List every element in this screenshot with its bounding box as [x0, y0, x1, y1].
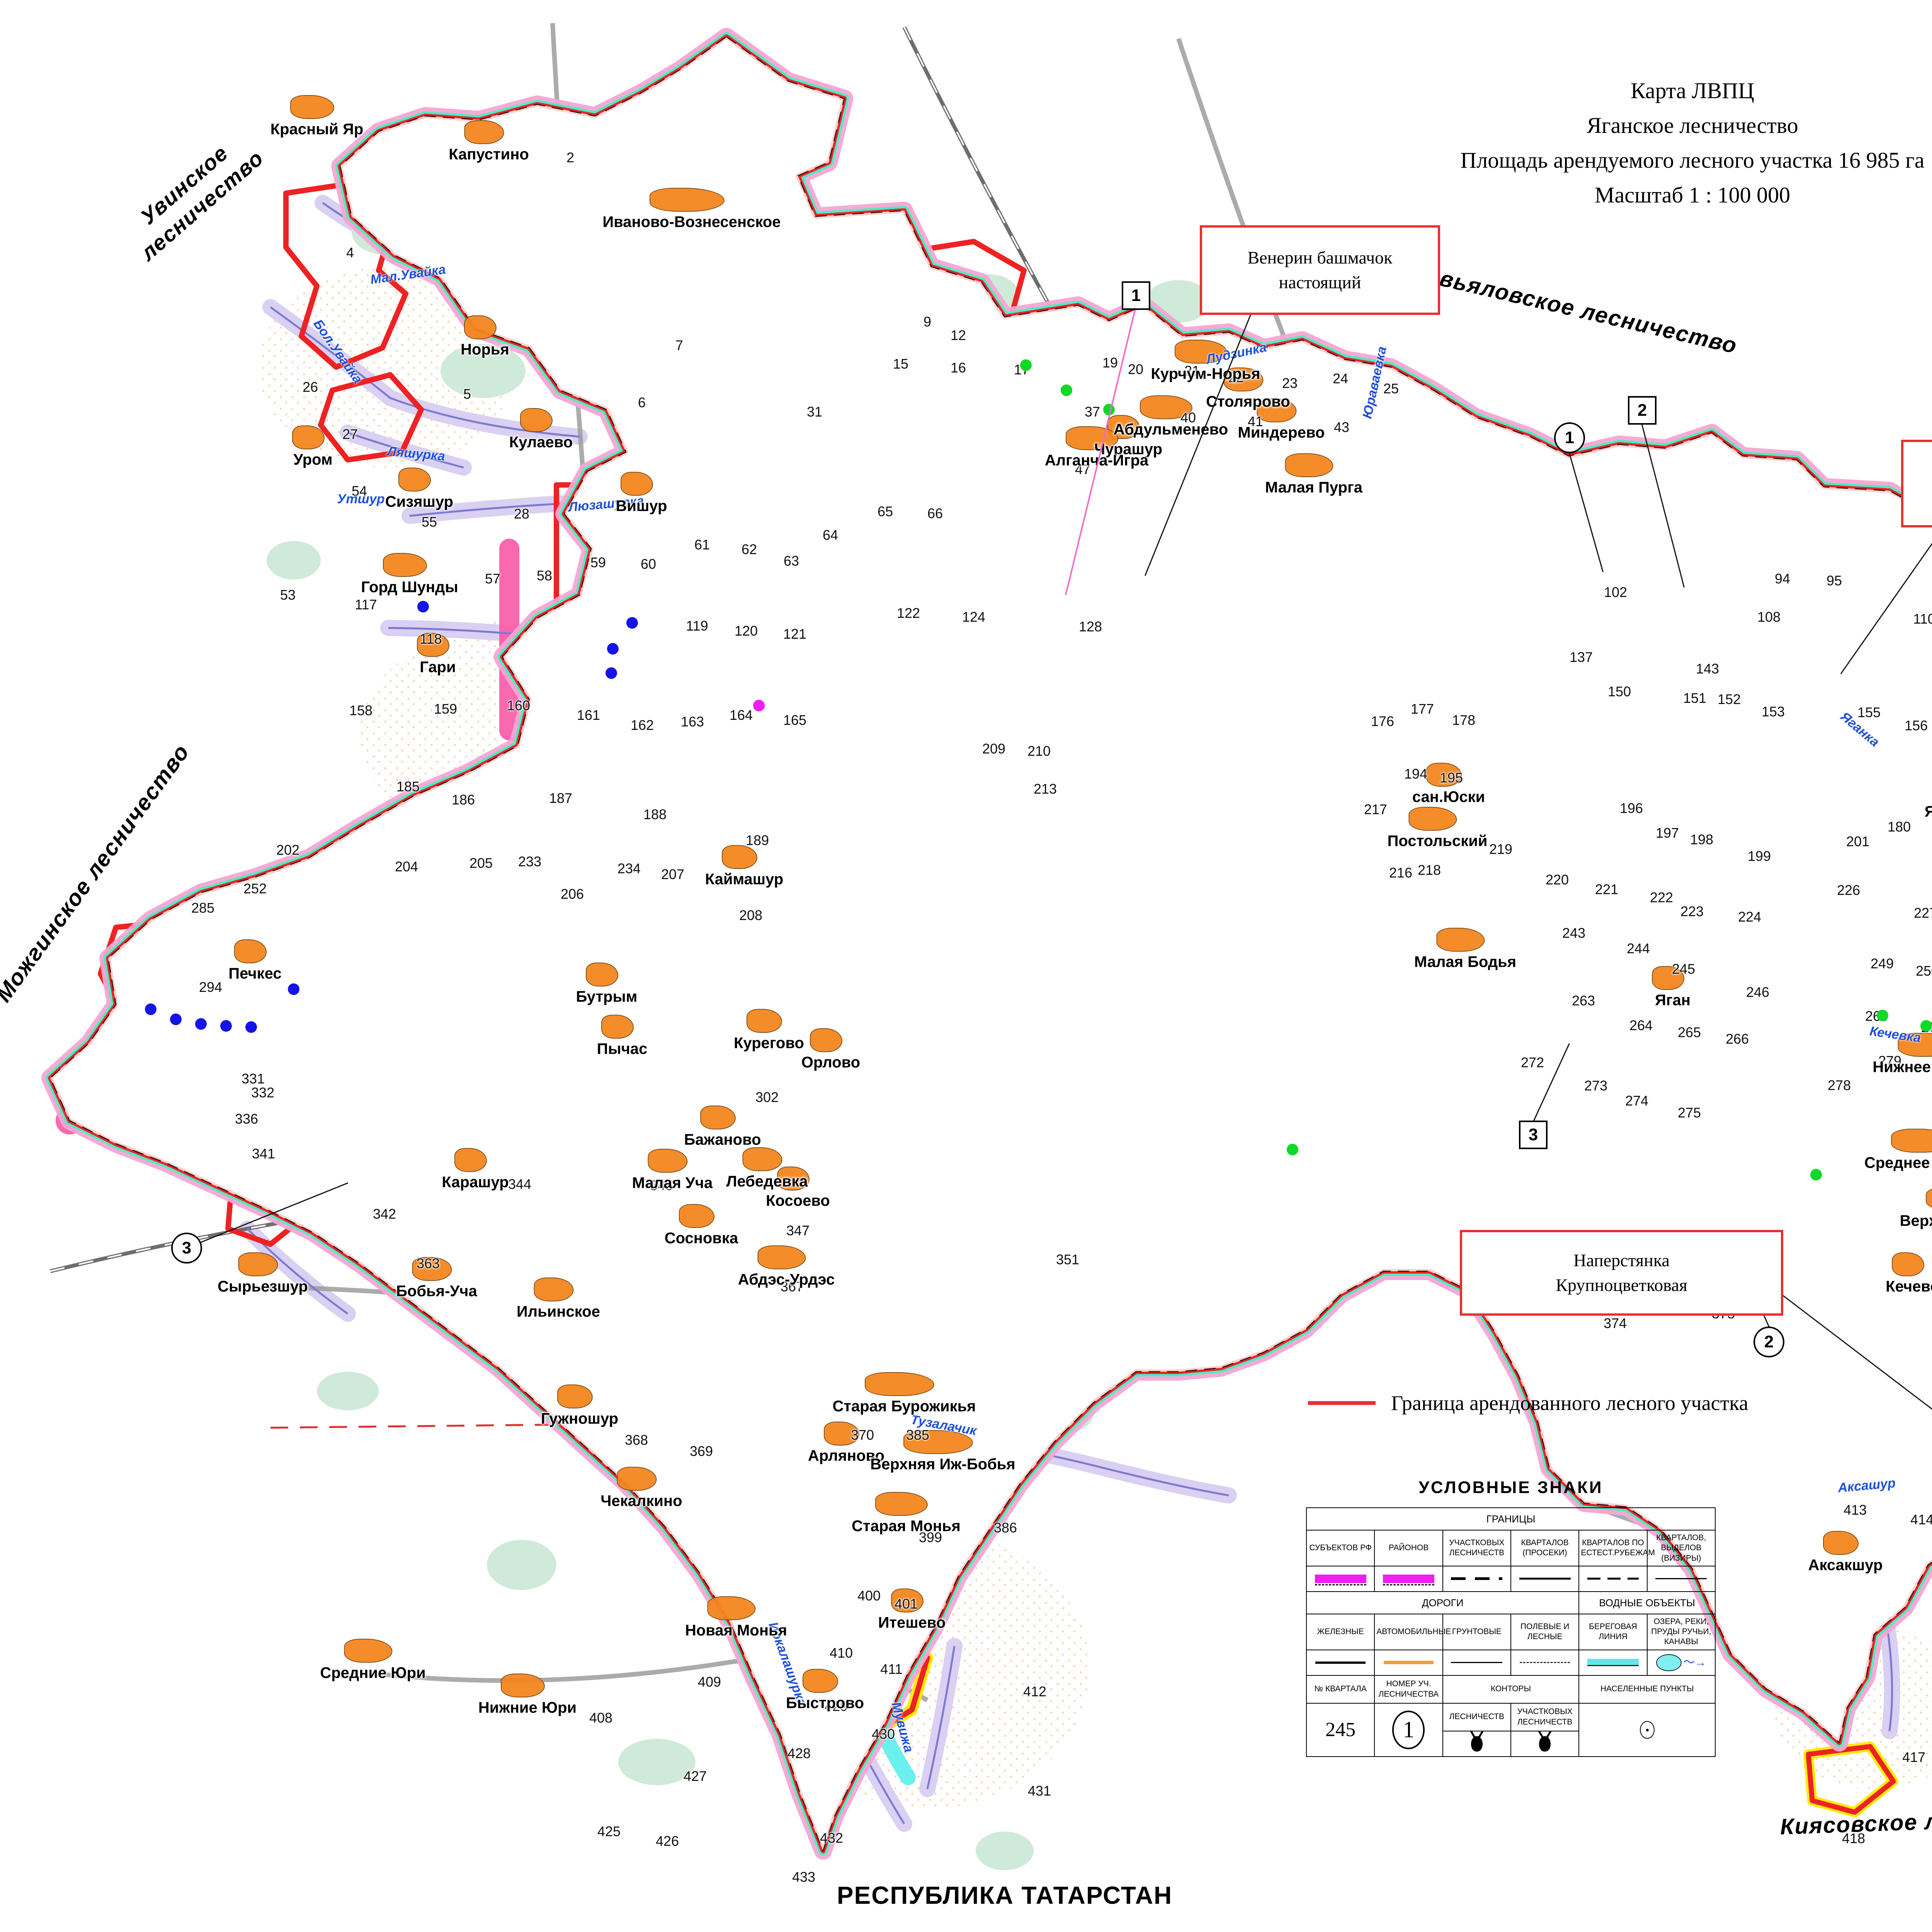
honey-dot [195, 1018, 207, 1030]
symbol-cell-kvline [1511, 1566, 1579, 1592]
office-symbol [1511, 1731, 1579, 1757]
village-label: Косоево [766, 1192, 830, 1210]
quarter-number: 177 [1411, 701, 1434, 717]
village-label: Орлово [801, 1054, 860, 1071]
quarter-number: 363 [417, 1255, 440, 1272]
quarter-number: 244 [1627, 940, 1650, 957]
quarter-number: 370 [851, 1427, 874, 1443]
settlement-blob [238, 1252, 278, 1276]
settlement-blob [383, 553, 427, 577]
quarter-number: 218 [1418, 862, 1441, 878]
village-label: Карашур [442, 1174, 509, 1191]
quarter-number: 143 [1696, 661, 1719, 677]
settlement-blob [1437, 928, 1485, 952]
quarter-number: 108 [1757, 609, 1781, 625]
settlement-blob [747, 1009, 782, 1033]
quarter-number: 9 [923, 314, 931, 330]
settlement-blob [534, 1277, 574, 1301]
quarter-number: 53 [280, 587, 296, 603]
quarter-number: 158 [349, 702, 372, 719]
symbol-cell-rail [1306, 1650, 1374, 1675]
village-label: Верхняя Иж-Бобья [870, 1456, 1015, 1473]
symbol-cell-lake: 〜→ [1647, 1650, 1715, 1675]
quarter-number: 265 [1678, 1024, 1701, 1041]
village-label: Красный Яр [270, 121, 364, 138]
village-label: Старая Монья [852, 1518, 961, 1535]
quarter-number: 159 [434, 701, 457, 717]
settlement-blob [290, 95, 334, 119]
quarter-number: 224 [1738, 909, 1761, 925]
quarter-number: 433 [792, 1869, 815, 1885]
quarter-number: 234 [617, 861, 641, 877]
quarter-number: 414 [1910, 1512, 1932, 1528]
quarter-number: 209 [982, 741, 1005, 757]
village-label: Сизяшур [385, 493, 453, 511]
village-label: Постольский [1388, 833, 1488, 850]
village-label: Иваново-Вознесенское [602, 214, 781, 231]
symbol-cell-mag [1374, 1566, 1442, 1592]
symbols-header: ЖЕЛЕЗНЫЕ [1306, 1614, 1374, 1650]
settlement-blob [464, 315, 497, 339]
quarter-number: 95 [1827, 573, 1842, 589]
quarter-no-header: № КВАРТАЛА [1306, 1675, 1374, 1703]
quarter-number: 94 [1775, 571, 1790, 587]
water-section: ВОДНЫЕ ОБЪЕКТЫ [1579, 1592, 1715, 1614]
village-label: Нижнее Кечево [1872, 1059, 1932, 1076]
quarter-number: 164 [730, 707, 753, 723]
symbols-header: УЧАСТКОВЫХ ЛЕСНИЧЕСТВ [1443, 1530, 1511, 1566]
map-title-block: Карта ЛВПЦ Яганское лесничество Площадь … [1325, 73, 1932, 213]
quarter-number: 186 [452, 792, 475, 808]
village-label: Малая Уча [632, 1175, 713, 1192]
quarter-number: 31 [807, 404, 822, 420]
quarter-number: 16 [951, 360, 966, 376]
symbols-header: РАЙОНОВ [1374, 1530, 1442, 1566]
honey-dot [245, 1021, 257, 1033]
quarter-number: 266 [1726, 1031, 1749, 1047]
quarter-number: 63 [784, 553, 799, 569]
quarter-number: 122 [897, 605, 920, 621]
quarter-number: 198 [1690, 832, 1713, 848]
species-callout: Мытник СкипетровидныйЗаразиха Бледноцвет… [1901, 440, 1932, 527]
quarter-number: 151 [1683, 690, 1706, 706]
settlement-blob [398, 468, 431, 492]
settlement-blob [1285, 453, 1333, 477]
quarter-number: 368 [625, 1432, 648, 1448]
quarter-number: 344 [508, 1176, 531, 1192]
quarter-number: 128 [1079, 619, 1102, 635]
village-label: Быстрово [786, 1695, 864, 1712]
symbols-header: ГРУНТОВЫЕ [1443, 1614, 1511, 1650]
quarter-number: 272 [1521, 1054, 1544, 1071]
roads-section: ДОРОГИ [1306, 1592, 1579, 1614]
quarter-number: 160 [507, 697, 530, 714]
quarter-number: 207 [661, 866, 684, 883]
quarter-number: 25 [1383, 381, 1399, 397]
settlements-header: НАСЕЛЕННЫЕ ПУНКТЫ [1579, 1675, 1715, 1703]
quarter-number: 427 [684, 1768, 707, 1784]
settlement-blob [707, 1596, 756, 1620]
quarter-number: 217 [1364, 801, 1387, 818]
settlement-blob [679, 1204, 714, 1228]
quarter-number: 220 [1546, 872, 1569, 888]
honey-dot [145, 1003, 156, 1015]
settlement-blob [1409, 807, 1457, 831]
oopt-marker-square-1: 1 [1122, 281, 1150, 310]
quarter-number: 409 [698, 1674, 721, 1690]
village-label: Яган-Докья [1925, 803, 1932, 821]
settlement-blob [621, 472, 653, 496]
village-label: Новая Монья [685, 1622, 787, 1639]
quarter-number: 413 [1844, 1502, 1867, 1518]
settlement-blob [601, 1015, 634, 1039]
quarter-number: 43 [1334, 419, 1349, 435]
quarter-number: 20 [1128, 361, 1143, 378]
settlement-blob [586, 963, 618, 986]
settlement-blob [557, 1384, 593, 1408]
quarter-number: 302 [755, 1089, 779, 1105]
quarter-number: 430 [872, 1726, 895, 1742]
quarter-number: 274 [1625, 1093, 1648, 1109]
oopt-marker-square-2: 2 [1628, 396, 1656, 425]
village-label: Бутрым [576, 988, 638, 1006]
map-title-line1: Карта ЛВПЦ [1325, 73, 1932, 108]
symbols-header: КВАРТАЛОВ (ПРОСЕКИ) [1511, 1530, 1579, 1566]
honey-dot [417, 601, 429, 612]
quarter-number: 55 [422, 514, 437, 530]
village-label: Курчум-Норья [1151, 366, 1260, 383]
quarter-number: 411 [880, 1661, 902, 1677]
quarter-number: 208 [739, 907, 762, 923]
settlement-blob [501, 1673, 545, 1697]
quarter-number: 250 [1916, 963, 1932, 979]
map-title-line3: Площадь арендуемого лесного участка 16 9… [1325, 143, 1932, 178]
symbols-table: ГРАНИЦЫСУБЪЕКТОВ РФРАЙОНОВУЧАСТКОВЫХ ЛЕС… [1306, 1507, 1716, 1757]
settlement-blob [758, 1245, 806, 1269]
quarter-number: 178 [1452, 712, 1475, 728]
lease-line-swatch [1308, 1401, 1376, 1405]
quarter-number: 426 [656, 1833, 679, 1849]
village-label: Лебедевка [726, 1173, 808, 1190]
quarter-number: 150 [1608, 684, 1631, 700]
quarter-number: 332 [251, 1085, 274, 1101]
relict-dot [1287, 1144, 1298, 1155]
oopt-marker-circle-1: 1 [1554, 422, 1585, 453]
village-label: Малая Бодья [1414, 954, 1516, 971]
symbol-cell-auto [1374, 1650, 1442, 1675]
quarter-number: 216 [1389, 865, 1412, 881]
settlement-blob [875, 1492, 928, 1516]
village-label: Каймашур [705, 871, 784, 888]
quarter-number: 417 [1902, 1749, 1925, 1765]
symbols-header: АВТОМОБИЛЬНЫЕ [1374, 1614, 1442, 1650]
forestry-no-value: 1 [1374, 1703, 1442, 1757]
quarter-number: 165 [783, 712, 806, 728]
village-label: Бобья-Уча [396, 1283, 477, 1300]
quarter-number: 59 [590, 554, 606, 571]
quarter-number: 152 [1718, 691, 1741, 707]
quarter-number: 273 [1584, 1078, 1607, 1094]
village-label: Аксакшур [1808, 1557, 1883, 1574]
quarter-number: 61 [694, 537, 710, 553]
quarter-number: 27 [342, 426, 358, 442]
village-label: Печкес [228, 965, 281, 983]
quarter-number: 204 [395, 859, 418, 875]
offices-sub1: ЛЕСНИЧЕСТВ [1443, 1703, 1511, 1731]
village-label: Сырьезшур [218, 1278, 308, 1296]
lease-boundary-label: Граница арендованного лесного участка [1391, 1391, 1748, 1415]
quarter-number: 102 [1604, 584, 1627, 600]
honey-dot [607, 643, 619, 655]
oopt-marker-circle-3: 3 [171, 1233, 202, 1264]
settlement-blob [1823, 1531, 1859, 1555]
relict-dot [1061, 384, 1072, 396]
quarter-number: 400 [857, 1588, 881, 1604]
honey-dot [170, 1014, 182, 1025]
quarter-number: 294 [199, 979, 222, 995]
magenta-dot [753, 700, 765, 711]
quarter-number: 162 [631, 717, 654, 733]
quarter-number: 369 [690, 1443, 713, 1459]
village-label: Среднее Кечево [1864, 1155, 1932, 1172]
settlement-blob [617, 1467, 657, 1491]
relict-dot [1920, 1020, 1932, 1032]
quarter-number: 118 [420, 631, 442, 647]
quarter-no-value: 245 [1306, 1703, 1374, 1757]
symbol-cell-field [1511, 1650, 1579, 1675]
lease-boundary-legend: Граница арендованного лесного участка [1308, 1391, 1748, 1415]
village-label: Гари [420, 659, 456, 676]
quarter-number: 341 [252, 1146, 275, 1162]
settlement-blob [648, 1149, 688, 1173]
village-label: Бажаново [684, 1131, 761, 1149]
quarter-number: 202 [276, 842, 299, 858]
quarter-number: 408 [589, 1710, 612, 1726]
relict-dot [1810, 1169, 1822, 1180]
quarter-number: 176 [1371, 713, 1394, 730]
symbols-header: ПОЛЕВЫЕ И ЛЕСНЫЕ [1511, 1614, 1579, 1650]
village-label: Нижние Юри [478, 1699, 577, 1717]
map-title-line2: Яганское лесничество [1325, 108, 1932, 143]
species-callout: Венерин башмачокнастоящий [1200, 225, 1440, 315]
symbols-legend-block: УСЛОВНЫЕ ЗНАКИ ГРАНИЦЫСУБЪЕКТОВ РФРАЙОНО… [1306, 1478, 1716, 1757]
quarter-number: 347 [786, 1223, 810, 1239]
quarter-number: 64 [823, 527, 838, 543]
village-label: Вишур [616, 498, 667, 515]
settlement-blob [1891, 1129, 1932, 1153]
quarter-number: 2 [566, 150, 574, 166]
village-label: Гужношур [541, 1410, 618, 1428]
river-label: Утшур [337, 492, 384, 507]
quarter-number: 246 [1746, 984, 1769, 1000]
village-label: Миндерево [1238, 424, 1325, 442]
quarter-number: 119 [686, 618, 708, 634]
quarter-number: 264 [1629, 1017, 1653, 1034]
quarter-number: 57 [485, 571, 500, 587]
village-label: Яган [1655, 992, 1690, 1009]
office-symbol [1443, 1731, 1511, 1757]
quarter-number: 243 [1562, 925, 1585, 941]
quarter-number: 117 [355, 597, 377, 613]
village-label: Верхнее Кечево [1900, 1213, 1932, 1230]
quarter-number: 197 [1656, 825, 1679, 841]
quarter-number: 342 [373, 1206, 396, 1222]
quarter-number: 110 [1913, 611, 1932, 627]
village-label: Абдульменево [1114, 421, 1228, 439]
quarter-number: 58 [537, 568, 552, 584]
quarter-number: 206 [561, 886, 584, 902]
symbol-cell-thinline [1647, 1566, 1715, 1592]
quarter-number: 153 [1762, 704, 1785, 720]
quarter-number: 37 [1085, 404, 1100, 420]
quarter-number: 412 [1023, 1684, 1046, 1700]
relict-dot [1020, 359, 1032, 371]
quarter-number: 120 [735, 623, 758, 639]
quarter-number: 205 [469, 855, 493, 871]
quarter-number: 285 [191, 900, 214, 916]
oopt-marker-square-3: 3 [1519, 1121, 1548, 1149]
quarter-number: 188 [643, 806, 667, 823]
quarter-number: 185 [396, 779, 420, 795]
quarter-number: 210 [1027, 743, 1051, 759]
quarter-number: 428 [787, 1745, 811, 1762]
symbols-header: КВАРТАЛОВ, ВЫДЕЛОВ (ВИЗИРЫ) [1647, 1530, 1715, 1566]
quarter-number: 252 [243, 881, 267, 897]
village-label: Кулаево [509, 434, 573, 451]
village-label: Абдэс-Урдэс [738, 1271, 835, 1289]
quarter-number: 223 [1680, 903, 1704, 920]
village-label: Курегово [734, 1035, 804, 1052]
quarter-number: 15 [893, 356, 908, 372]
quarter-number: 432 [820, 1830, 843, 1846]
quarter-number: 6 [638, 395, 646, 411]
region-label: РЕСПУБЛИКА ТАТАРСТАН [837, 1880, 1172, 1911]
village-label: Горд Шунды [361, 579, 458, 596]
quarter-number: 180 [1888, 819, 1911, 835]
settlement-blob [865, 1372, 934, 1396]
quarter-number: 245 [1672, 961, 1695, 977]
settlement-blob [700, 1105, 736, 1129]
quarter-number: 12 [951, 327, 966, 344]
village-label: Кечево [1886, 1278, 1932, 1296]
settlement-blob [803, 1669, 838, 1693]
quarter-number: 199 [1748, 848, 1771, 864]
village-label: Сосновка [665, 1230, 738, 1247]
quarter-number: 187 [549, 790, 572, 806]
quarter-number: 121 [783, 626, 806, 642]
symbol-cell-thinline [1443, 1650, 1511, 1675]
settlement-blob [520, 408, 553, 432]
quarter-number: 189 [746, 832, 769, 849]
map-page: Красный ЯрКапустиноИваново-ВознесенскоеН… [0, 0, 1932, 1932]
symbol-cell-boldash [1443, 1566, 1511, 1592]
settlement-blob [722, 845, 757, 869]
symbol-cell-mag [1306, 1566, 1374, 1592]
quarter-number: 155 [1857, 704, 1881, 721]
quarter-number: 278 [1828, 1077, 1851, 1094]
village-label: Уром [293, 451, 332, 469]
honey-dot [605, 667, 617, 679]
forestry-no-header: НОМЕР УЧ. ЛЕСНИЧЕСТВА [1374, 1675, 1442, 1703]
village-label: Чекалкино [600, 1493, 682, 1510]
village-label: Столярово [1206, 393, 1290, 411]
symbols-header: БЕРЕГОВАЯ ЛИНИЯ [1579, 1614, 1647, 1650]
symbols-legend-title: УСЛОВНЫЕ ЗНАКИ [1306, 1478, 1716, 1497]
quarter-number: 161 [577, 707, 600, 723]
symbol-cell-coast [1579, 1650, 1647, 1675]
quarter-number: 60 [641, 556, 656, 572]
quarter-number: 374 [1604, 1315, 1627, 1332]
settlement-blob [464, 120, 504, 144]
quarter-number: 4 [346, 245, 354, 261]
quarter-number: 156 [1905, 718, 1928, 734]
quarter-number: 249 [1871, 956, 1894, 972]
quarter-number: 163 [681, 714, 704, 730]
symbols-header: СУБЪЕКТОВ РФ [1306, 1530, 1374, 1566]
oopt-marker-circle-2: 2 [1753, 1327, 1784, 1357]
quarter-number: 386 [994, 1520, 1017, 1536]
settlement-blob [810, 1028, 842, 1052]
quarter-number: 336 [235, 1111, 258, 1127]
quarter-number: 263 [1572, 993, 1595, 1009]
village-label: Норья [461, 341, 509, 359]
village-label: Капустино [449, 146, 529, 163]
quarter-number: 28 [514, 506, 529, 522]
village-label: сан.Юски [1412, 789, 1485, 806]
village-label: Малая Пурга [1265, 479, 1362, 497]
offices-header: КОНТОРЫ [1443, 1675, 1579, 1703]
village-label: Ильинское [517, 1303, 600, 1321]
quarter-number: 23 [1282, 375, 1298, 391]
settlement-blob [344, 1639, 393, 1663]
quarter-number: 5 [463, 386, 471, 402]
settlement-blob [454, 1148, 487, 1172]
symbols-header: ОЗЕРА, РЕКИ, ПРУДЫ РУЧЬИ, КАНАВЫ [1647, 1614, 1715, 1650]
quarter-number: 124 [962, 609, 985, 625]
honey-dot [288, 983, 299, 995]
quarter-number: 195 [1440, 770, 1463, 786]
quarter-number: 213 [1034, 781, 1057, 797]
settlement-blob [1892, 1252, 1924, 1276]
quarter-number: 227 [1914, 905, 1932, 921]
species-callout: НаперстянкаКрупноцветковая [1460, 1230, 1783, 1316]
quarter-number: 233 [518, 854, 541, 870]
settlement-symbol [1579, 1703, 1715, 1757]
quarter-number: 226 [1837, 882, 1860, 898]
settlement-blob [650, 188, 724, 212]
quarter-number: 431 [1028, 1783, 1051, 1799]
quarter-number: 401 [895, 1596, 918, 1612]
settlement-blob [743, 1147, 782, 1171]
quarter-number: 410 [830, 1645, 853, 1661]
quarter-number: 221 [1595, 881, 1618, 898]
relict-dot [1877, 1010, 1888, 1021]
village-label: Старая Бурожикья [832, 1398, 976, 1415]
quarter-number: 201 [1846, 833, 1869, 850]
symbols-header: КВАРТАЛОВ ПО ЕСТЕСТ.РУБЕЖАМ [1579, 1530, 1647, 1566]
quarter-number: 26 [303, 379, 318, 395]
village-label: Итешево [878, 1614, 946, 1632]
map-title-line4: Масштаб 1 : 100 000 [1325, 178, 1932, 213]
quarter-number: 275 [1678, 1105, 1701, 1121]
offices-sub2: УЧАСТКОВЫХ ЛЕСНИЧЕСТВ [1511, 1703, 1579, 1731]
quarter-number: 62 [742, 541, 757, 558]
quarter-number: 66 [927, 505, 943, 522]
quarter-number: 219 [1489, 841, 1512, 857]
borders-section: ГРАНИЦЫ [1306, 1508, 1715, 1530]
quarter-number: 137 [1570, 649, 1593, 665]
symbol-cell-longdash [1579, 1566, 1647, 1592]
